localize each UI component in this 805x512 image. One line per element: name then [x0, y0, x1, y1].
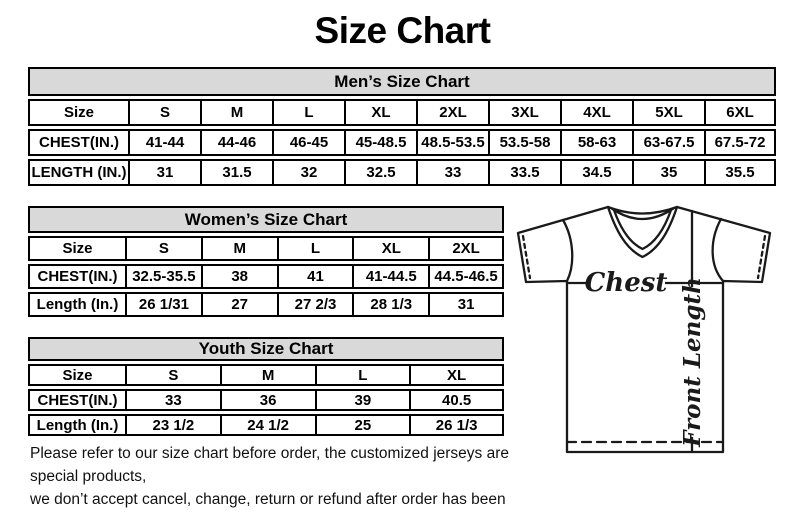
table-cell: M — [220, 364, 315, 386]
table-row: CHEST(IN.) 33 36 39 40.5 — [28, 389, 504, 411]
row-label-cell: CHEST(IN.) — [28, 389, 125, 411]
mens-chart-header: Men’s Size Chart — [28, 67, 776, 96]
table-cell: L — [315, 364, 410, 386]
table-row: LENGTH (IN.) 31 31.5 32 32.5 33 33.5 34.… — [28, 159, 776, 186]
table-cell: 32.5-35.5 — [125, 264, 201, 289]
table-cell: 2XL — [428, 236, 504, 261]
table-cell: 26 1/31 — [125, 292, 201, 317]
table-cell: 6XL — [704, 99, 776, 126]
table-cell: XL — [344, 99, 416, 126]
table-cell: 31 — [128, 159, 200, 186]
table-cell: M — [200, 99, 272, 126]
table-row: Length (In.) 23 1/2 24 1/2 25 26 1/3 — [28, 414, 504, 436]
womens-size-table: Size S M L XL 2XL CHEST(IN.) 32.5-35.5 3… — [28, 233, 504, 320]
table-cell: 44.5-46.5 — [428, 264, 504, 289]
table-cell: 44-46 — [200, 129, 272, 156]
table-cell: S — [125, 364, 220, 386]
table-row: Size S M L XL 2XL 3XL 4XL 5XL 6XL — [28, 99, 776, 126]
row-label-cell: Size — [28, 364, 125, 386]
table-cell: 38 — [201, 264, 277, 289]
row-label-cell: Size — [28, 236, 125, 261]
table-cell: 45-48.5 — [344, 129, 416, 156]
front-length-label: Front Length — [679, 277, 706, 448]
table-cell: 58-63 — [560, 129, 632, 156]
disclaimer-text: Please refer to our size chart before or… — [30, 442, 535, 512]
table-cell: 41-44 — [128, 129, 200, 156]
table-cell: 33 — [416, 159, 488, 186]
youth-size-chart-section: Youth Size Chart Size S M L XL CHEST(IN.… — [28, 337, 504, 439]
table-cell: 31 — [428, 292, 504, 317]
table-cell: 32.5 — [344, 159, 416, 186]
mens-size-table: Size S M L XL 2XL 3XL 4XL 5XL 6XL CHEST(… — [28, 96, 776, 189]
table-cell: 5XL — [632, 99, 704, 126]
table-cell: 35.5 — [704, 159, 776, 186]
womens-chart-header: Women’s Size Chart — [28, 206, 504, 233]
table-cell: 28 1/3 — [352, 292, 428, 317]
table-cell: 32 — [272, 159, 344, 186]
table-cell: 39 — [315, 389, 410, 411]
collar-back-curves — [608, 207, 677, 219]
table-cell: 35 — [632, 159, 704, 186]
page-title: Size Chart — [0, 10, 805, 52]
table-cell: 40.5 — [409, 389, 504, 411]
table-cell: 41-44.5 — [352, 264, 428, 289]
armhole-left — [563, 220, 572, 281]
table-cell: L — [272, 99, 344, 126]
table-cell: 46-45 — [272, 129, 344, 156]
disclaimer-line-2: we don’t accept cancel, change, return o… — [30, 491, 506, 512]
womens-size-chart-section: Women’s Size Chart Size S M L XL 2XL CHE… — [28, 206, 504, 320]
table-cell: 67.5-72 — [704, 129, 776, 156]
row-label-cell: Length (In.) — [28, 292, 125, 317]
table-cell: 63-67.5 — [632, 129, 704, 156]
mens-size-chart-section: Men’s Size Chart Size S M L XL 2XL 3XL 4… — [28, 67, 776, 189]
table-row: CHEST(IN.) 41-44 44-46 46-45 45-48.5 48.… — [28, 129, 776, 156]
table-row: Size S M L XL 2XL — [28, 236, 504, 261]
table-cell: L — [277, 236, 353, 261]
table-cell: S — [125, 236, 201, 261]
table-cell: 53.5-58 — [488, 129, 560, 156]
table-cell: XL — [409, 364, 504, 386]
table-row: CHEST(IN.) 32.5-35.5 38 41 41-44.5 44.5-… — [28, 264, 504, 289]
chest-label: Chest — [585, 268, 668, 298]
tshirt-diagram: Chest Front Length — [512, 197, 797, 463]
armhole-right — [713, 219, 723, 281]
table-cell: 33.5 — [488, 159, 560, 186]
table-cell: 25 — [315, 414, 410, 436]
youth-size-table: Size S M L XL CHEST(IN.) 33 36 39 40.5 L… — [28, 361, 504, 439]
size-chart-page: Size Chart Men’s Size Chart Size S M L X… — [0, 0, 805, 512]
table-cell: M — [201, 236, 277, 261]
table-cell: 27 — [201, 292, 277, 317]
row-label-cell: Length (In.) — [28, 414, 125, 436]
table-cell: 31.5 — [200, 159, 272, 186]
table-cell: S — [128, 99, 200, 126]
row-label-cell: Size — [28, 99, 128, 126]
table-cell: 26 1/3 — [409, 414, 504, 436]
table-cell: 23 1/2 — [125, 414, 220, 436]
table-cell: 4XL — [560, 99, 632, 126]
table-cell: 33 — [125, 389, 220, 411]
table-cell: 27 2/3 — [277, 292, 353, 317]
row-label-cell: LENGTH (IN.) — [28, 159, 128, 186]
table-cell: 41 — [277, 264, 353, 289]
table-cell: 34.5 — [560, 159, 632, 186]
row-label-cell: CHEST(IN.) — [28, 129, 128, 156]
shirt-outline — [518, 207, 770, 452]
table-cell: 24 1/2 — [220, 414, 315, 436]
youth-chart-header: Youth Size Chart — [28, 337, 504, 361]
table-cell: 48.5-53.5 — [416, 129, 488, 156]
disclaimer-line-1: Please refer to our size chart before or… — [30, 445, 509, 485]
table-row: Length (In.) 26 1/31 27 27 2/3 28 1/3 31 — [28, 292, 504, 317]
table-cell: 3XL — [488, 99, 560, 126]
table-cell: 2XL — [416, 99, 488, 126]
row-label-cell: CHEST(IN.) — [28, 264, 125, 289]
table-cell: 36 — [220, 389, 315, 411]
table-cell: XL — [352, 236, 428, 261]
table-row: Size S M L XL — [28, 364, 504, 386]
